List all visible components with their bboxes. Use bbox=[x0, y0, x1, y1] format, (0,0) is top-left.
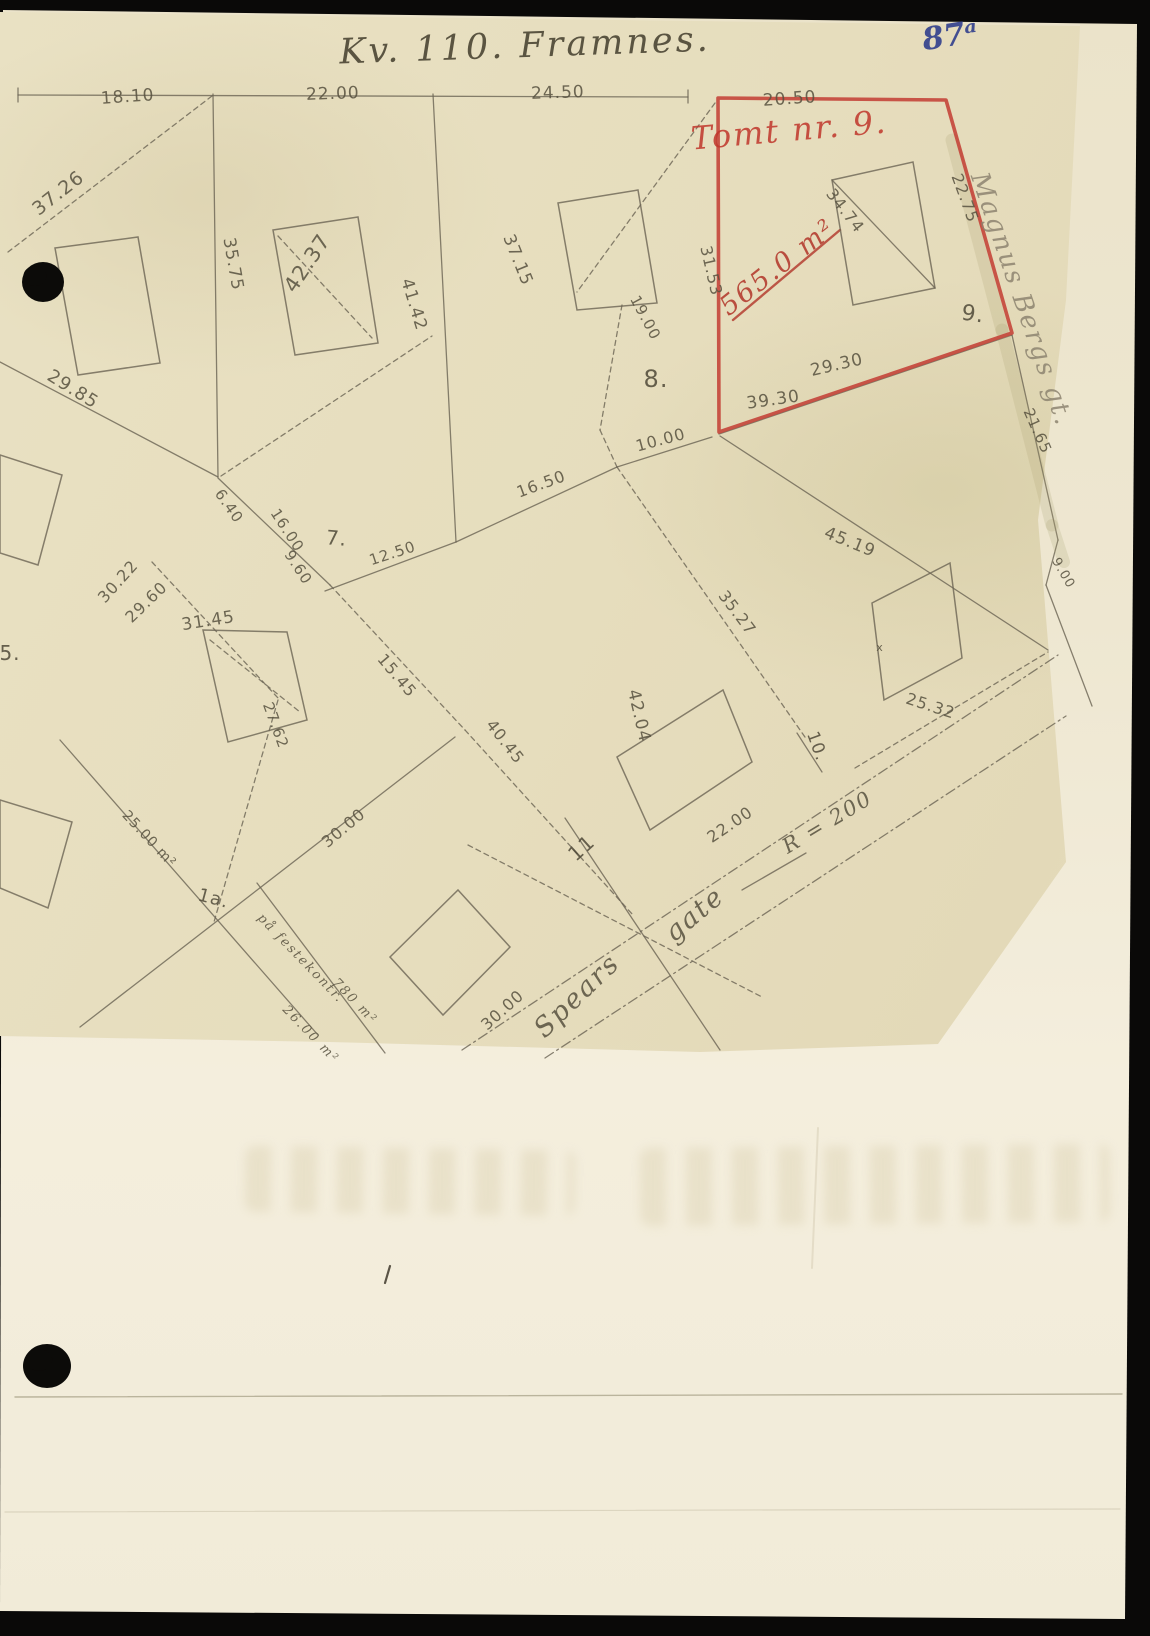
measurement-label: 19.00 bbox=[626, 292, 664, 343]
measurement-label: x bbox=[876, 641, 884, 654]
building-outline bbox=[0, 800, 72, 908]
measurement-label: 31.53 bbox=[696, 244, 726, 298]
measurement-label: 30.00 bbox=[477, 986, 527, 1034]
measurement-label: 42.04 bbox=[623, 687, 655, 744]
page-crease bbox=[812, 1128, 818, 1268]
measurement-label: 18.10 bbox=[100, 85, 155, 109]
note-label: 26.00 m² bbox=[278, 1002, 342, 1067]
measurement-label: 45.19 bbox=[821, 523, 878, 562]
street-name-label: R = 200 bbox=[777, 786, 877, 859]
measurement-label: 30.00 bbox=[318, 804, 369, 851]
measurement-label: 20.50 bbox=[762, 87, 817, 111]
boundary-line bbox=[1046, 585, 1092, 706]
measurement-label: 37.26 bbox=[28, 166, 88, 220]
measurement-label: 22.00 bbox=[704, 802, 757, 846]
boundary-line-dashed bbox=[600, 430, 617, 467]
street-name-label: gate bbox=[658, 881, 730, 949]
boundary-line-dashed bbox=[330, 585, 465, 730]
measurement-label: 24.50 bbox=[531, 82, 585, 104]
note-label: på festekontr. bbox=[254, 910, 348, 1006]
page-rule-line bbox=[5, 1509, 1120, 1512]
measurement-label: 10.00 bbox=[634, 424, 688, 456]
measurement-label: 42.37 bbox=[279, 229, 335, 296]
measurement-label: 29.60 bbox=[121, 578, 171, 627]
street-line bbox=[462, 655, 1058, 1050]
measurement-label: 6.40 bbox=[211, 486, 247, 527]
scanned-map-document: 18.1022.0024.5020.5037.2635.7542.3737.15… bbox=[0, 0, 1150, 1636]
boundary-line-dashed bbox=[214, 700, 278, 922]
boundary-line-dashed bbox=[210, 640, 300, 712]
measurement-label: 9.00 bbox=[1048, 555, 1077, 591]
measurement-label: 29.30 bbox=[808, 349, 865, 381]
plot-number-label: 10. bbox=[802, 729, 831, 764]
measurement-label: 41.42 bbox=[396, 276, 431, 333]
boundary-line-dashed bbox=[221, 336, 432, 476]
measurement-label: 22.00 bbox=[306, 83, 360, 105]
boundary-line bbox=[433, 94, 456, 542]
boundary-line bbox=[720, 436, 1048, 650]
plot-number-label: 5. bbox=[0, 641, 21, 665]
measurement-label: 35.27 bbox=[715, 587, 761, 639]
pen-mark bbox=[385, 1266, 390, 1283]
boundary-line bbox=[80, 737, 455, 1027]
building-outline bbox=[872, 563, 962, 700]
measurement-label: 35.75 bbox=[218, 236, 247, 292]
boundary-line bbox=[60, 740, 318, 1035]
measurement-label: 25.00 m² bbox=[119, 808, 180, 871]
measurement-label: 16.50 bbox=[514, 466, 568, 501]
page-rule-line bbox=[15, 1394, 1122, 1397]
plot-number-label: 9. bbox=[960, 301, 986, 329]
area-label: 565.0 m² bbox=[714, 213, 842, 323]
plot-number-label: 7. bbox=[325, 525, 348, 551]
boundary-line bbox=[218, 478, 330, 585]
boundary-line bbox=[213, 94, 218, 477]
street-line bbox=[545, 716, 1066, 1058]
measurement-label: 25.32 bbox=[904, 689, 958, 723]
building-outline bbox=[55, 237, 160, 375]
boundary-line-dashed bbox=[8, 96, 212, 252]
building-outline bbox=[0, 455, 62, 565]
measurement-label: 40.45 bbox=[482, 716, 528, 768]
plot-number-label: 8. bbox=[644, 365, 669, 393]
building-outline bbox=[390, 890, 510, 1015]
street-name-label: Spears bbox=[528, 948, 626, 1044]
plot-number-label: 1a. bbox=[196, 885, 232, 913]
boundary-line-dashed bbox=[600, 305, 622, 430]
punch-hole bbox=[23, 266, 46, 286]
measurement-label: 37.15 bbox=[498, 231, 537, 288]
map-drawing: 18.1022.0024.5020.5037.2635.7542.3737.15… bbox=[0, 0, 1150, 1636]
boundary-line bbox=[0, 362, 218, 477]
boundary-line bbox=[719, 335, 1012, 434]
measurement-label: 12.50 bbox=[367, 537, 418, 569]
punch-hole bbox=[26, 1349, 52, 1371]
